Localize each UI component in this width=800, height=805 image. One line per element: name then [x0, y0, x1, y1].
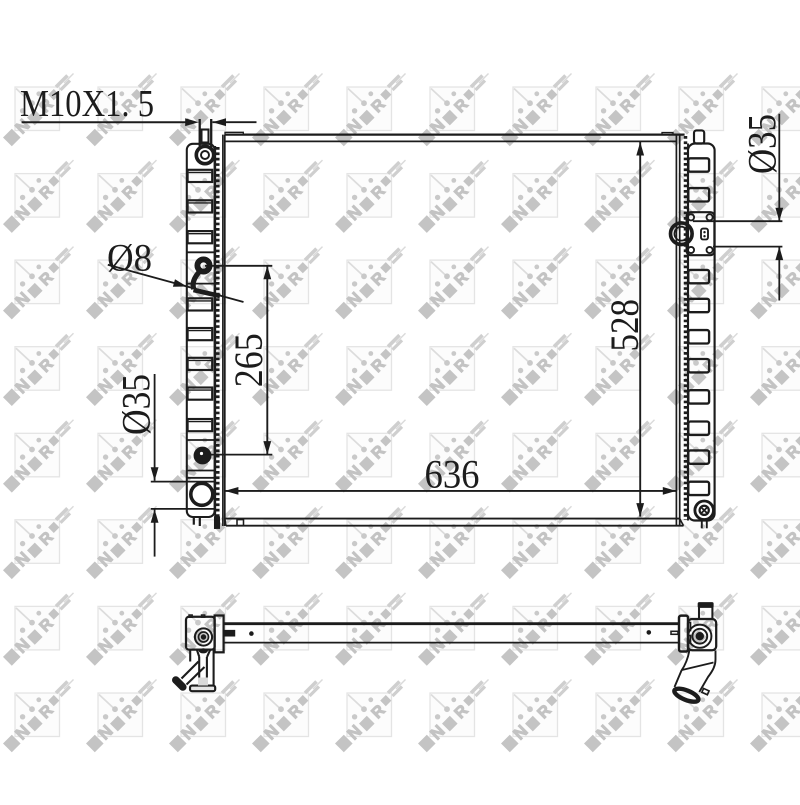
svg-text:265: 265 [226, 333, 271, 387]
svg-text:Ø35: Ø35 [114, 374, 159, 435]
svg-text:Ø8: Ø8 [107, 237, 152, 280]
svg-text:M10X1. 5: M10X1. 5 [20, 83, 154, 125]
svg-text:Ø35: Ø35 [740, 114, 785, 174]
svg-text:636: 636 [425, 451, 480, 496]
